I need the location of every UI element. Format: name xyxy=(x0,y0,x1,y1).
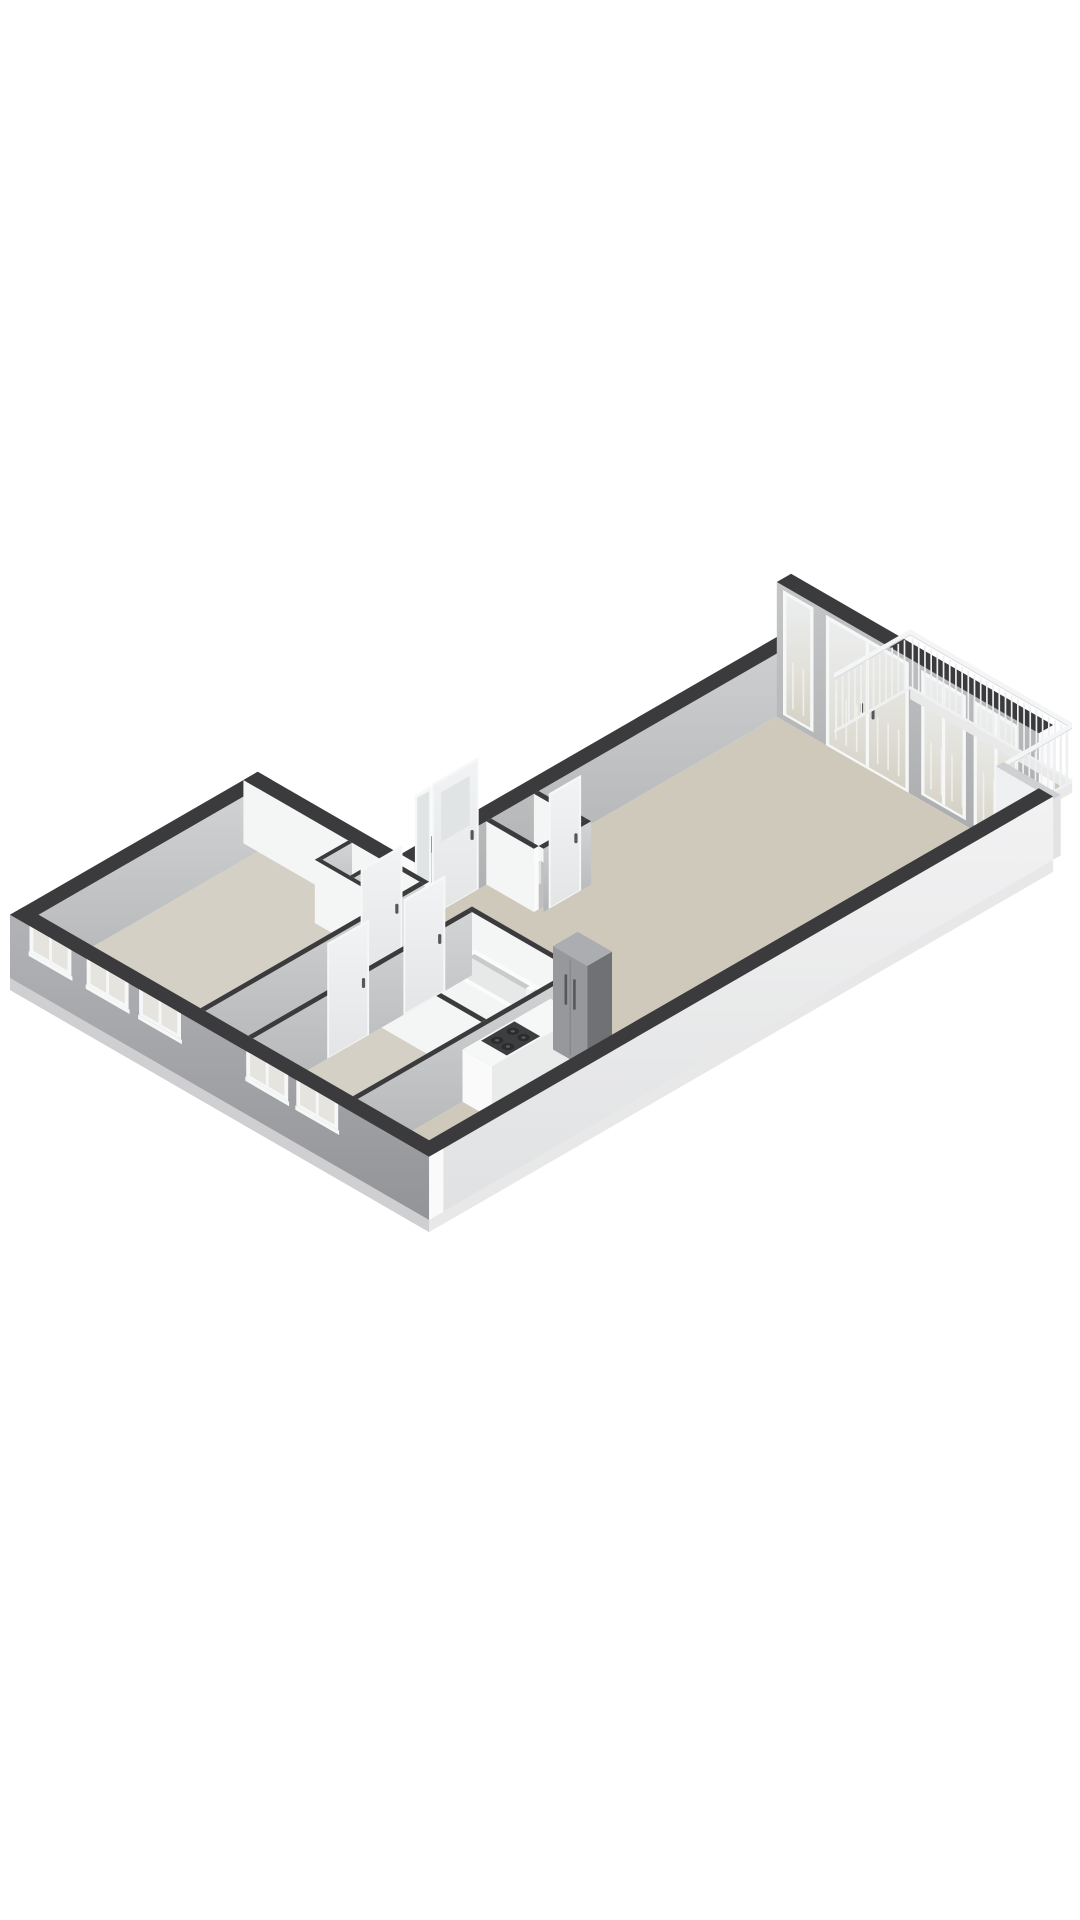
floorplan-page xyxy=(0,0,1080,1920)
bedroom2-door xyxy=(327,919,369,1059)
balcony-sidelight xyxy=(783,590,814,732)
bathroom-door xyxy=(403,875,445,1015)
toilet-door xyxy=(549,775,581,909)
floorplan-3d-render xyxy=(0,0,1080,1920)
floorplan-geometry xyxy=(10,574,1072,1232)
